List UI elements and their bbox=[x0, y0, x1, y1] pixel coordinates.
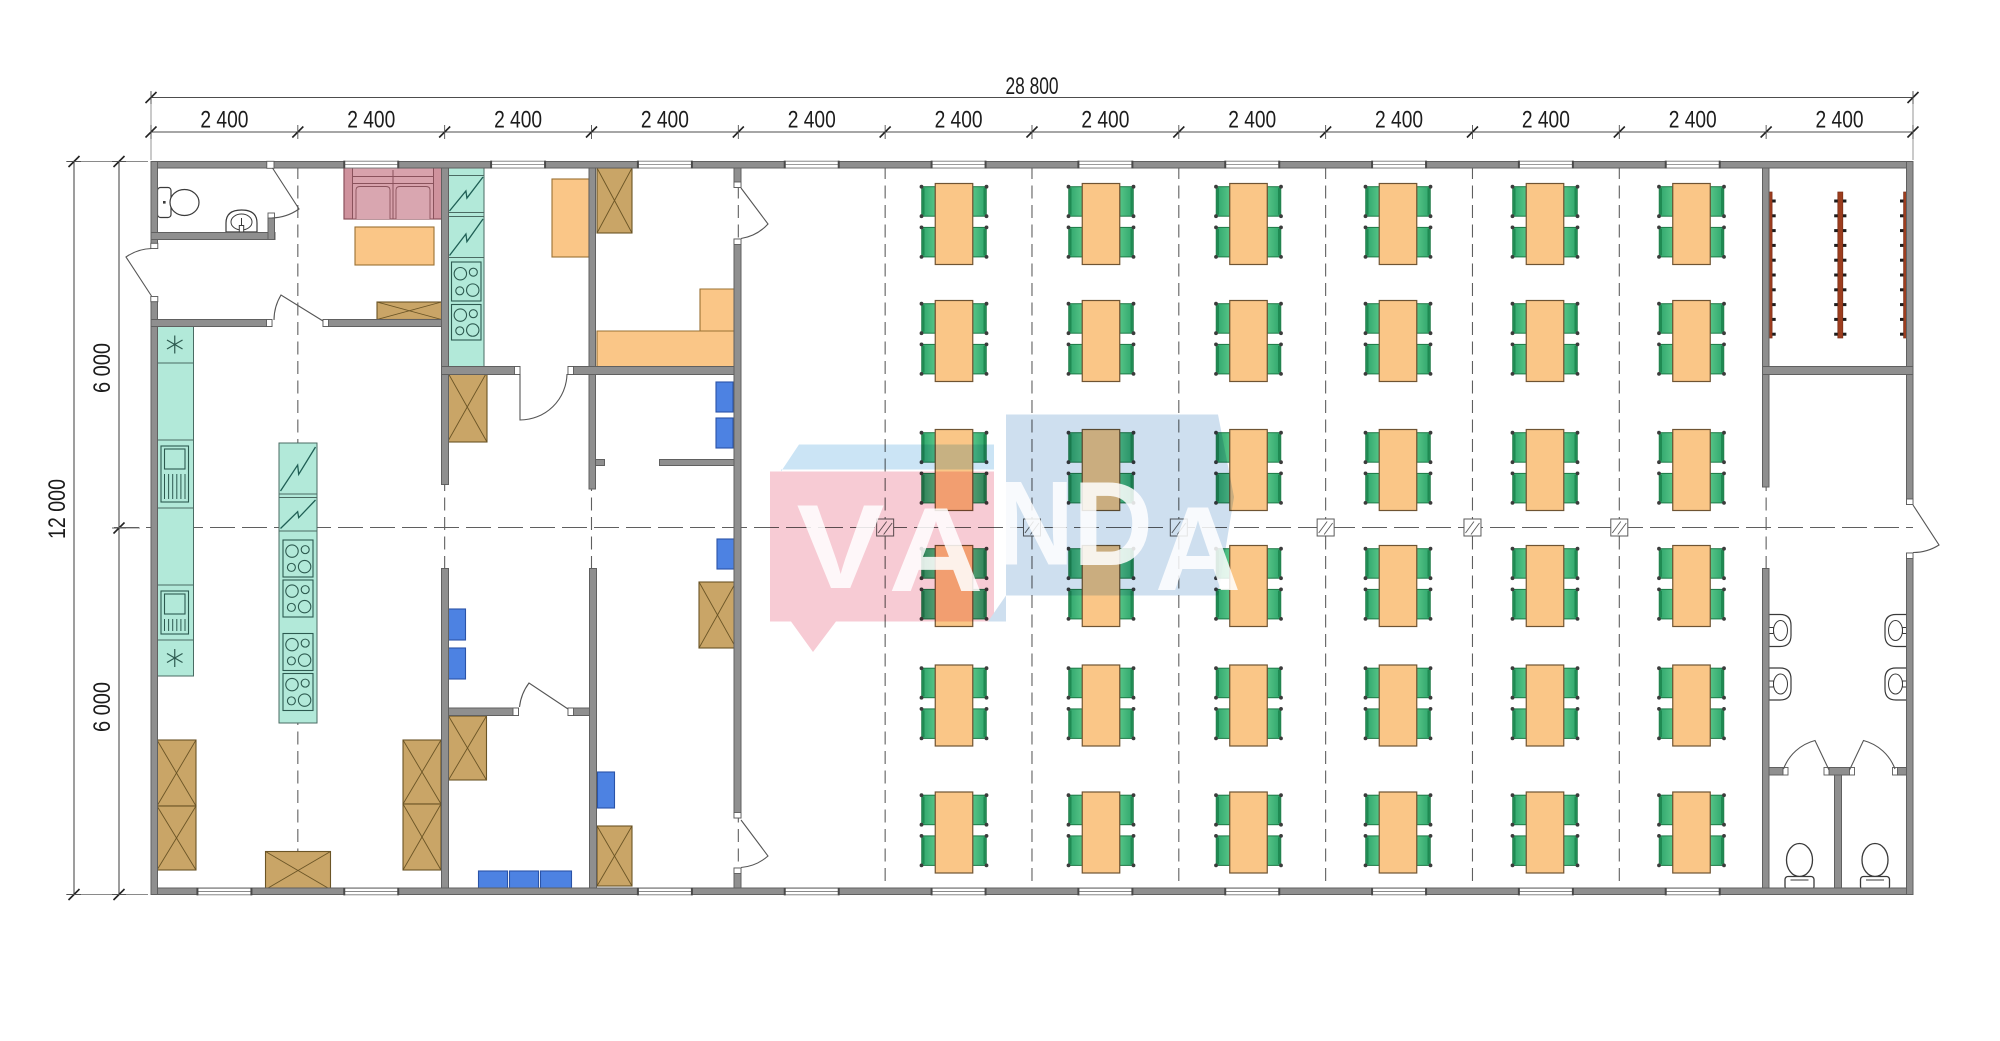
svg-text:2 400: 2 400 bbox=[935, 107, 983, 134]
svg-text:2 400: 2 400 bbox=[347, 107, 395, 134]
svg-text:N: N bbox=[996, 457, 1074, 591]
svg-text:2 400: 2 400 bbox=[1081, 107, 1129, 134]
svg-text:12 000: 12 000 bbox=[44, 479, 71, 539]
svg-text:D: D bbox=[1073, 457, 1153, 591]
svg-text:V: V bbox=[797, 480, 885, 614]
svg-text:A: A bbox=[1155, 482, 1241, 616]
svg-text:2 400: 2 400 bbox=[1228, 107, 1276, 134]
svg-text:2 400: 2 400 bbox=[788, 107, 836, 134]
svg-text:2 400: 2 400 bbox=[1669, 107, 1717, 134]
svg-text:2 400: 2 400 bbox=[494, 107, 542, 134]
svg-text:28 800: 28 800 bbox=[1006, 73, 1059, 100]
svg-text:2 400: 2 400 bbox=[1522, 107, 1570, 134]
svg-text:6 000: 6 000 bbox=[89, 343, 116, 393]
svg-text:2 400: 2 400 bbox=[641, 107, 689, 134]
svg-text:6 000: 6 000 bbox=[89, 682, 116, 732]
svg-text:A: A bbox=[889, 483, 984, 617]
svg-text:2 400: 2 400 bbox=[1816, 107, 1864, 134]
svg-text:2 400: 2 400 bbox=[200, 107, 248, 134]
svg-text:2 400: 2 400 bbox=[1375, 107, 1423, 134]
